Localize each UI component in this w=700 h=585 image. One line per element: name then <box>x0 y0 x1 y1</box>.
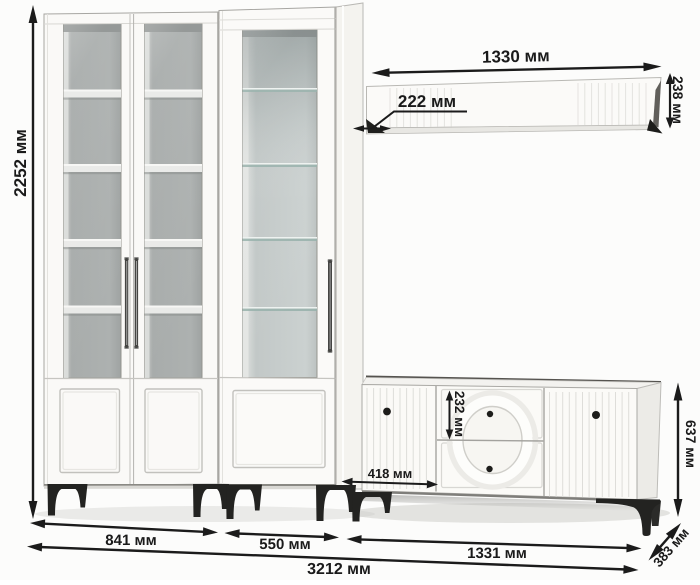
svg-text:222 мм: 222 мм <box>398 92 456 111</box>
svg-text:238 мм: 238 мм <box>670 76 686 124</box>
svg-text:2252 мм: 2252 мм <box>11 129 30 197</box>
svg-text:1330 мм: 1330 мм <box>482 46 550 67</box>
svg-text:637 мм: 637 мм <box>683 420 699 468</box>
svg-text:550 мм: 550 мм <box>259 536 310 553</box>
svg-text:841 мм: 841 мм <box>105 532 156 549</box>
svg-text:3212 мм: 3212 мм <box>307 561 371 578</box>
svg-text:418 мм: 418 мм <box>368 466 413 481</box>
svg-text:232 мм: 232 мм <box>452 391 467 437</box>
svg-text:1331 мм: 1331 мм <box>467 545 527 562</box>
